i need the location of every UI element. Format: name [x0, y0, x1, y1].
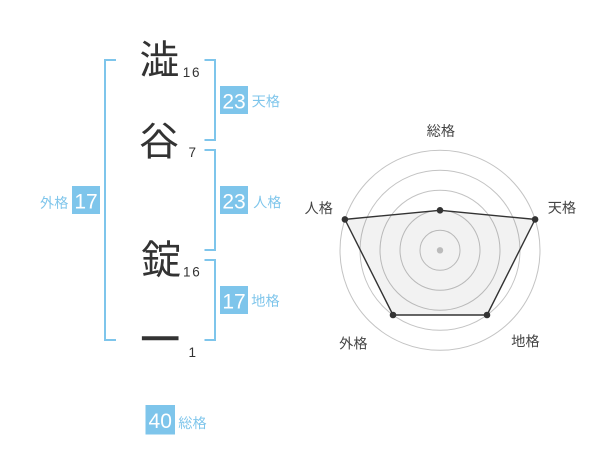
- svg-text:23: 23: [222, 191, 245, 214]
- svg-text:16: 16: [183, 265, 202, 280]
- svg-text:23: 23: [222, 91, 245, 114]
- svg-text:17: 17: [74, 191, 97, 214]
- svg-text:7: 7: [189, 145, 197, 160]
- svg-text:1: 1: [189, 345, 197, 360]
- svg-text:16: 16: [183, 65, 202, 80]
- svg-text:17: 17: [222, 291, 245, 314]
- svg-text:40: 40: [149, 410, 172, 433]
